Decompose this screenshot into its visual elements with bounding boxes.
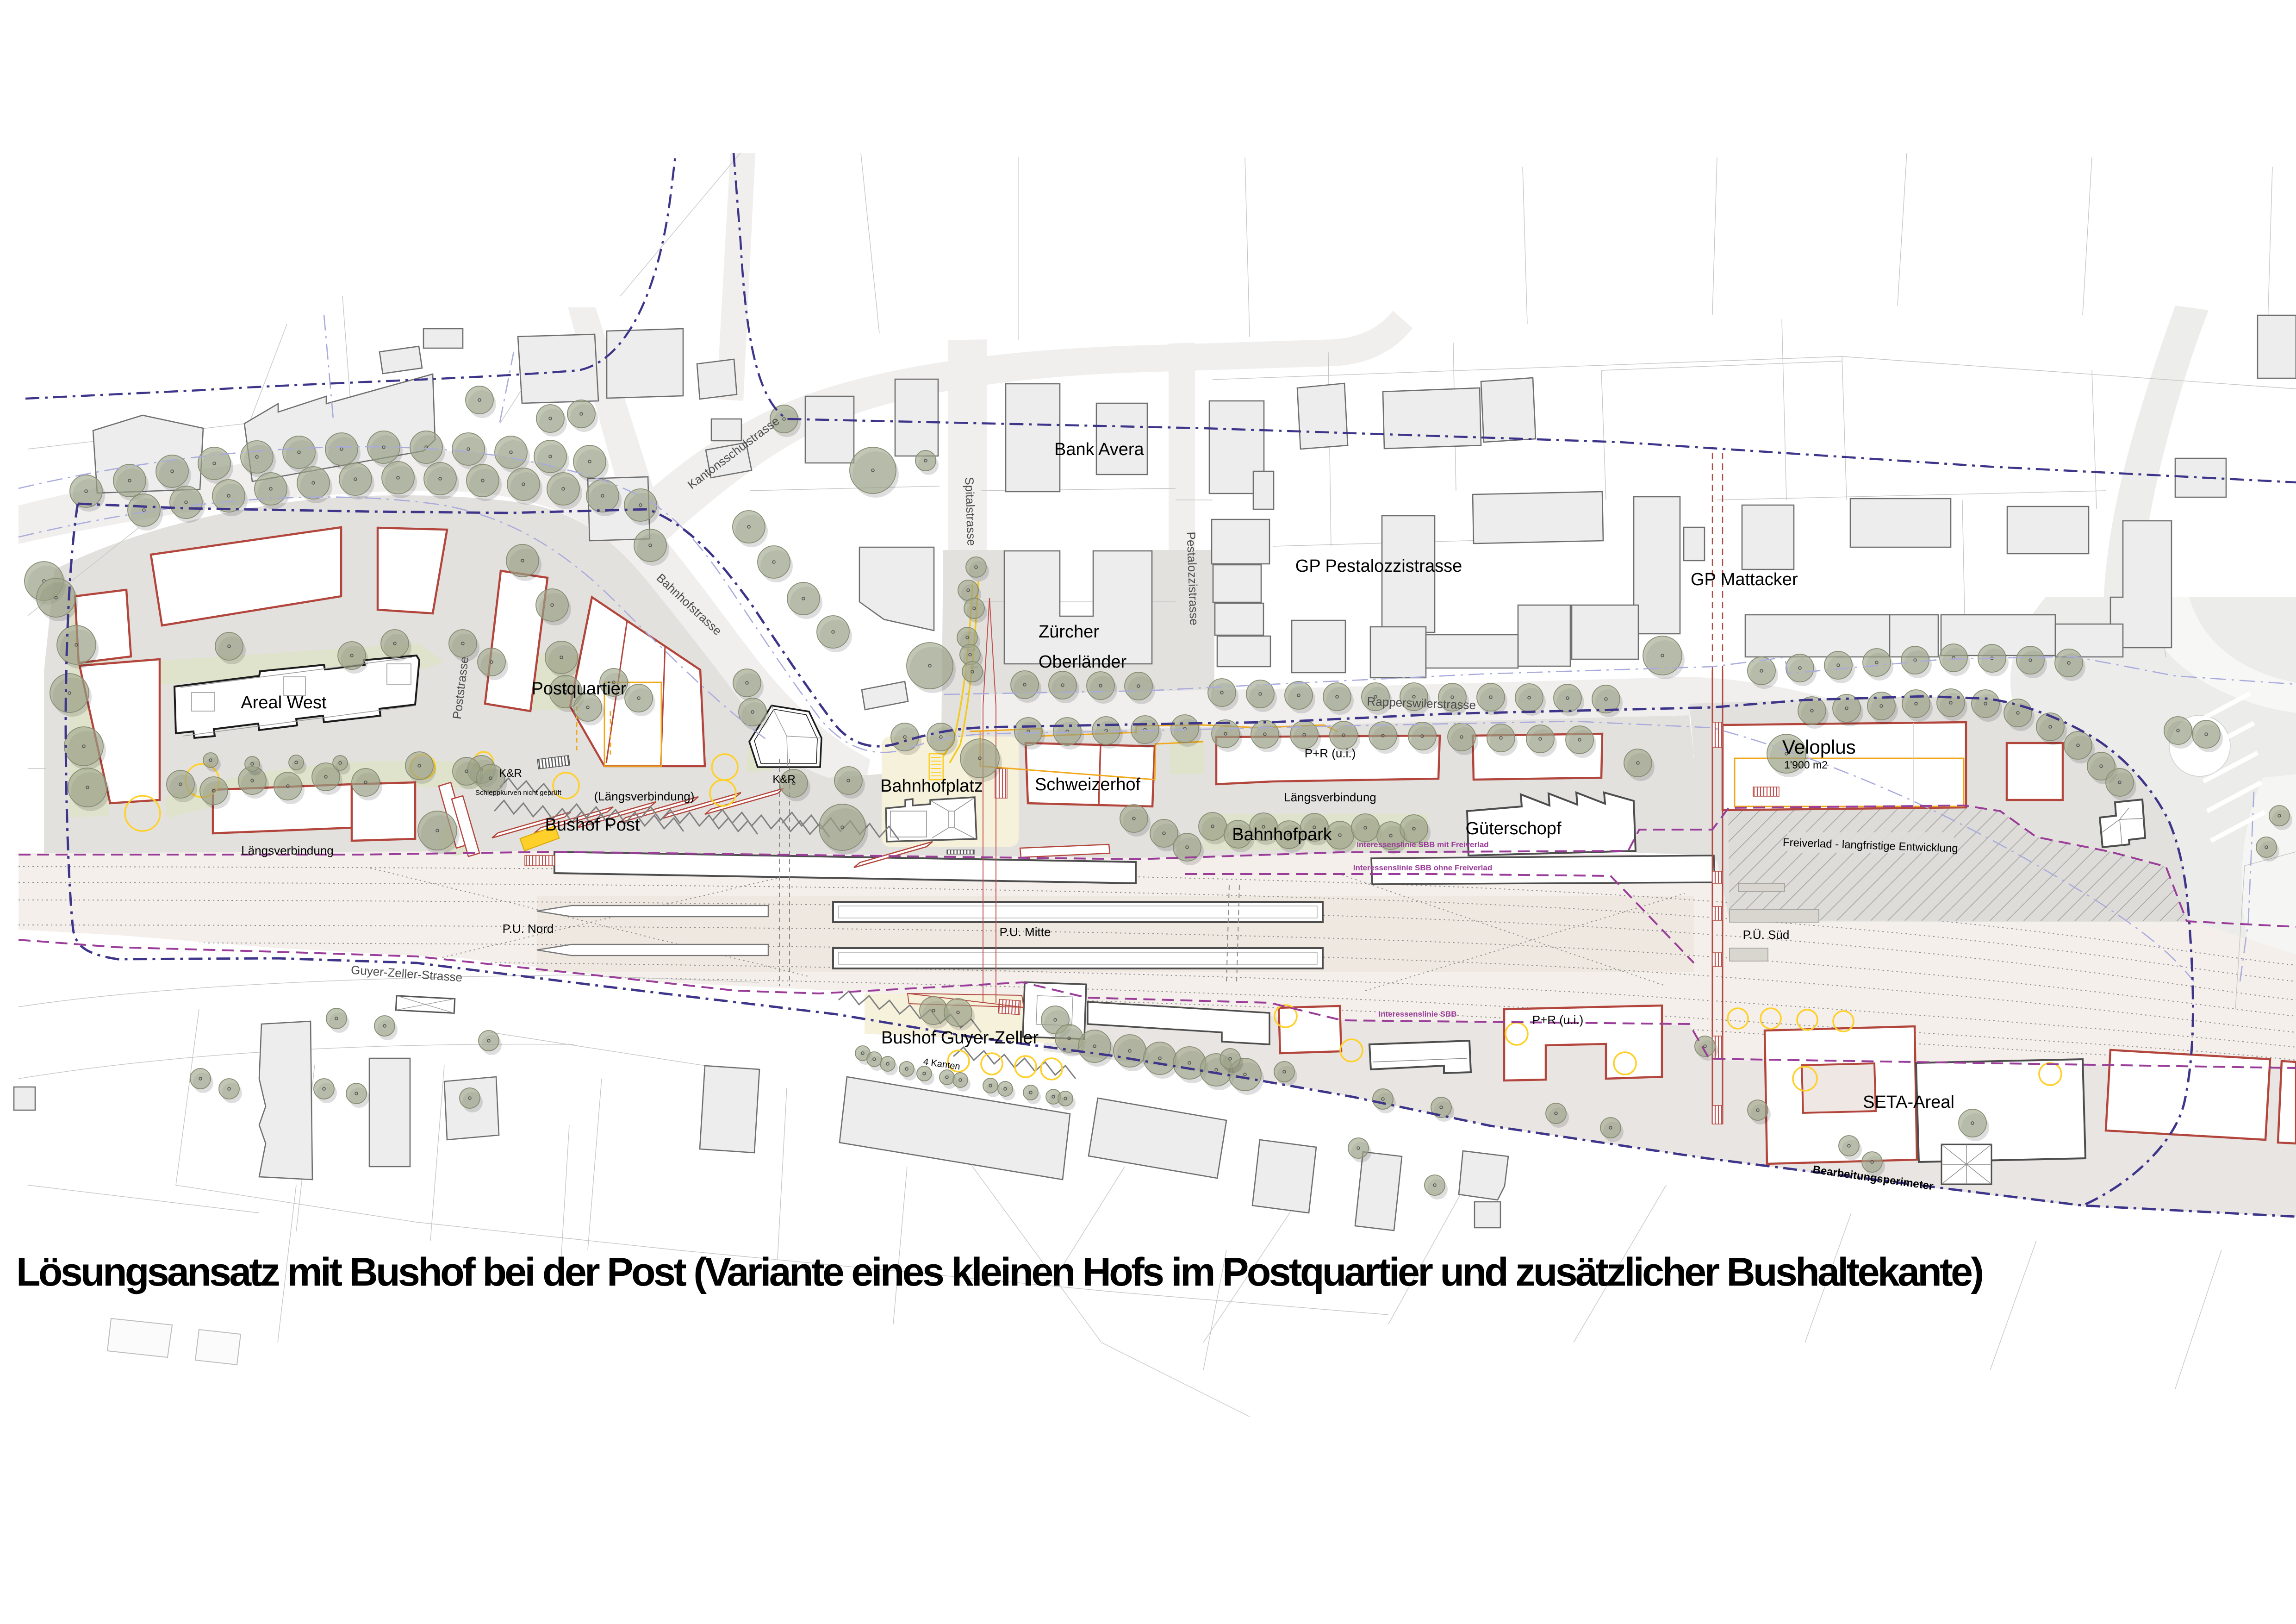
svg-text:K&R: K&R — [499, 767, 522, 780]
svg-text:Interessenslinie SBB: Interessenslinie SBB — [1378, 1010, 1456, 1018]
svg-text:Bearbeitungsperimeter: Bearbeitungsperimeter — [1812, 1163, 1934, 1193]
svg-text:K&R: K&R — [772, 773, 795, 786]
svg-text:Längsverbindung: Längsverbindung — [241, 843, 334, 857]
svg-text:Pestalozzistrasse: Pestalozzistrasse — [1184, 531, 1201, 625]
svg-text:Veloplus: Veloplus — [1782, 736, 1856, 758]
svg-text:(Längsverbindung): (Längsverbindung) — [594, 789, 695, 803]
svg-text:P.U. Nord: P.U. Nord — [503, 922, 554, 936]
svg-text:Interessenslinie SBB mit Freiv: Interessenslinie SBB mit Freiverlad — [1356, 840, 1488, 849]
svg-text:P.Ü. Süd: P.Ü. Süd — [1743, 928, 1790, 942]
svg-text:Bushof Guyer-Zeller: Bushof Guyer-Zeller — [881, 1028, 1039, 1048]
svg-text:Bahnhofstrasse: Bahnhofstrasse — [654, 571, 725, 638]
svg-text:Bahnhofpark: Bahnhofpark — [1232, 825, 1332, 844]
svg-text:P+R (u.i.): P+R (u.i.) — [1305, 746, 1356, 760]
svg-text:4 Kanten: 4 Kanten — [923, 1057, 961, 1072]
svg-text:Poststrasse: Poststrasse — [450, 656, 471, 720]
svg-text:SETA-Areal: SETA-Areal — [1863, 1093, 1954, 1112]
svg-text:Zürcher: Zürcher — [1039, 622, 1099, 642]
svg-text:Areal West: Areal West — [241, 693, 327, 712]
svg-text:Postquartier: Postquartier — [532, 679, 627, 699]
svg-text:Interessenslinie SBB ohne Frei: Interessenslinie SBB ohne Freiverlad — [1353, 863, 1492, 872]
svg-text:P+R (u.i.): P+R (u.i.) — [1532, 1013, 1584, 1027]
svg-text:Lösungsansatz mit Bushof bei d: Lösungsansatz mit Bushof bei der Post (V… — [16, 1250, 1984, 1294]
svg-text:Bank Avera: Bank Avera — [1054, 440, 1145, 459]
svg-text:1'900 m2: 1'900 m2 — [1784, 759, 1828, 771]
svg-text:Kantonsschulstrasse: Kantonsschulstrasse — [685, 414, 782, 492]
svg-text:GP Pestalozzistrasse: GP Pestalozzistrasse — [1295, 556, 1462, 576]
svg-text:P.U. Mitte: P.U. Mitte — [1000, 925, 1051, 939]
svg-text:Schleppkurven nicht geprüft: Schleppkurven nicht geprüft — [475, 789, 562, 797]
svg-text:Rapperswilerstrasse: Rapperswilerstrasse — [1367, 694, 1476, 712]
svg-text:Schweizerhof: Schweizerhof — [1035, 775, 1141, 794]
svg-text:Spitalstrasse: Spitalstrasse — [962, 477, 978, 546]
svg-text:Güterschopf: Güterschopf — [1466, 819, 1562, 838]
svg-text:GP Mattacker: GP Mattacker — [1691, 570, 1798, 589]
svg-text:Bushof Post: Bushof Post — [545, 815, 640, 835]
svg-text:Bahnhofplatz: Bahnhofplatz — [880, 776, 983, 796]
svg-text:Längsverbindung: Längsverbindung — [1284, 790, 1376, 804]
svg-text:Oberländer: Oberländer — [1039, 652, 1126, 672]
